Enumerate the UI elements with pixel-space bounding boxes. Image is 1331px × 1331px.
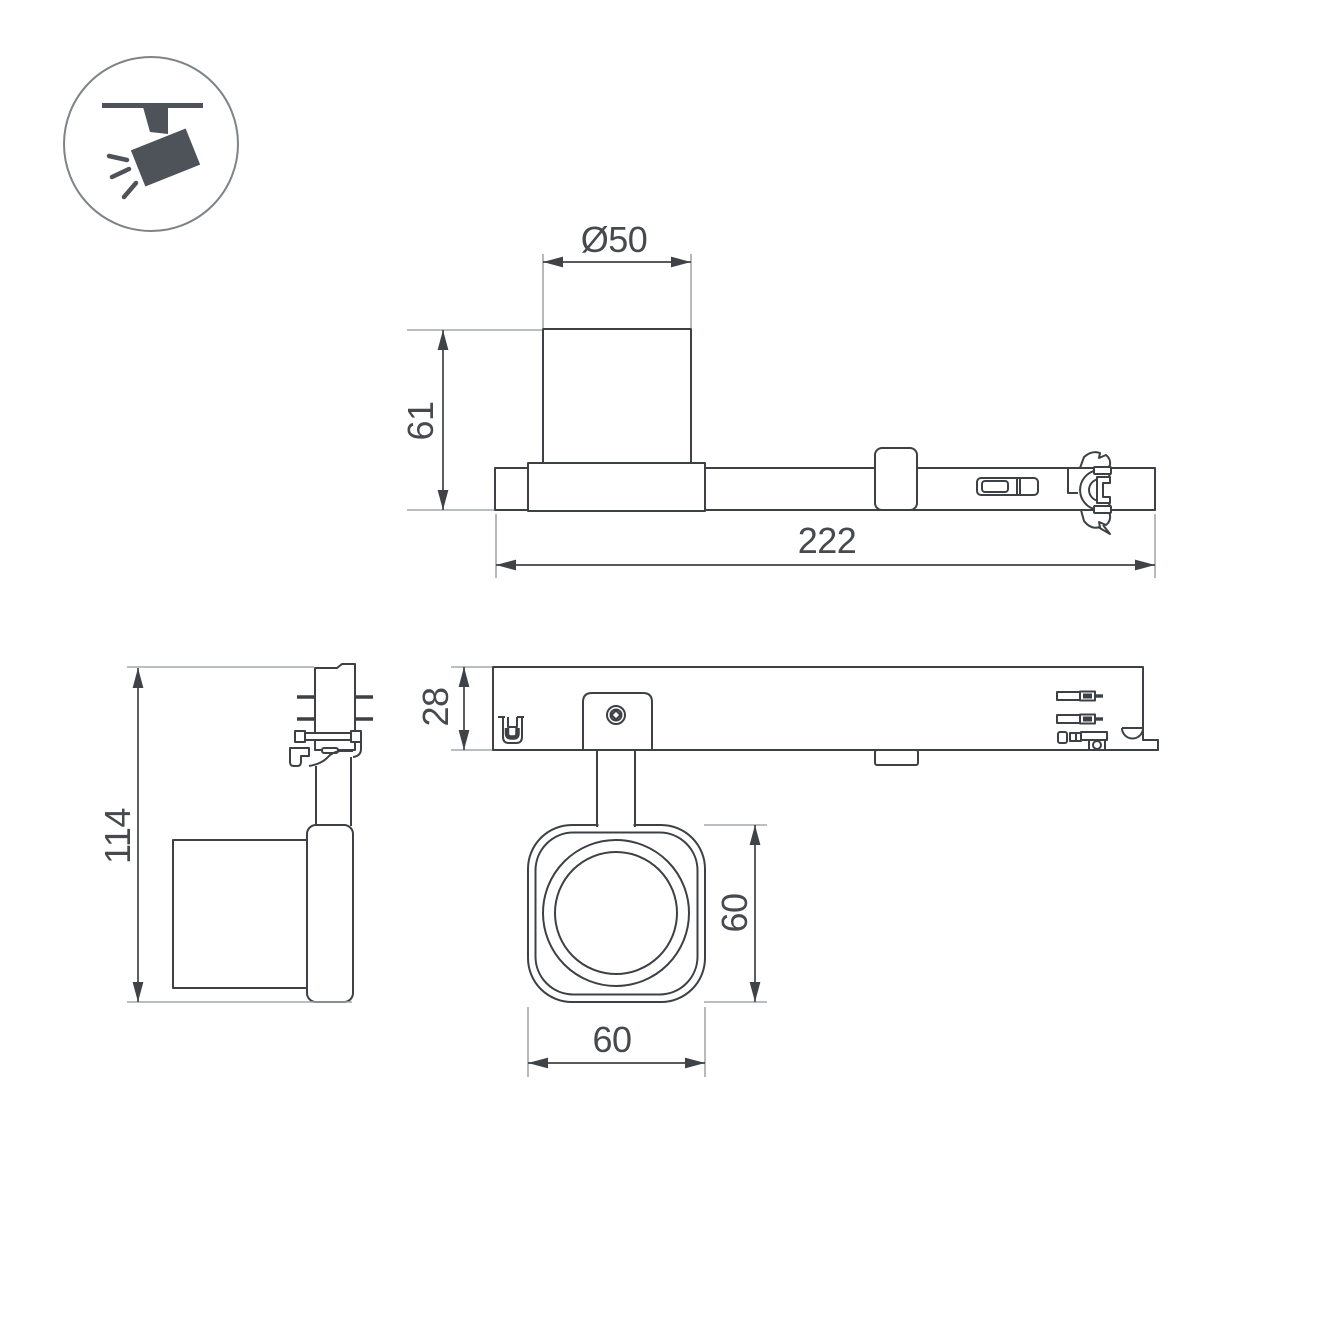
head-mount-block [307,825,353,1002]
dim-length-222: 222 [496,514,1155,578]
side-view: Ø50 61 222 [400,219,1155,578]
track-tab [875,750,918,765]
dim-diameter-label: Ø50 [581,219,648,260]
dim-track-28-label: 28 [415,687,456,726]
adapter-base [528,463,705,511]
end-view: 114 [97,664,373,1002]
driver-box [875,448,917,510]
dim-track-28: 28 [415,667,492,750]
dim-diameter: Ø50 [543,219,691,328]
dim-height-114-label: 114 [97,808,138,864]
dim-height-61-label: 61 [400,401,441,440]
lamp-cylinder [543,329,691,463]
head-body [173,840,307,988]
bottom-view: 28 60 60 [415,667,1158,1077]
dim-head-height-60: 60 [704,825,767,1002]
mount-plate [583,693,652,750]
technical-drawing-canvas: Ø50 61 222 [0,0,1331,1331]
dim-length-222-label: 222 [798,520,857,561]
dimensional-drawing: Ø50 61 222 [0,0,1331,1331]
slider-switch [977,478,1038,495]
dim-head-width-60-label: 60 [592,1019,631,1060]
lamp-head-front [528,825,705,1002]
dim-head-height-60-label: 60 [714,893,755,932]
stem [316,757,351,826]
adapter-crossbar [295,731,361,742]
latch-flap-top [1080,452,1110,468]
stem [597,750,635,828]
dim-head-width-60: 60 [528,1007,705,1077]
track-spotlight-icon [64,57,238,231]
